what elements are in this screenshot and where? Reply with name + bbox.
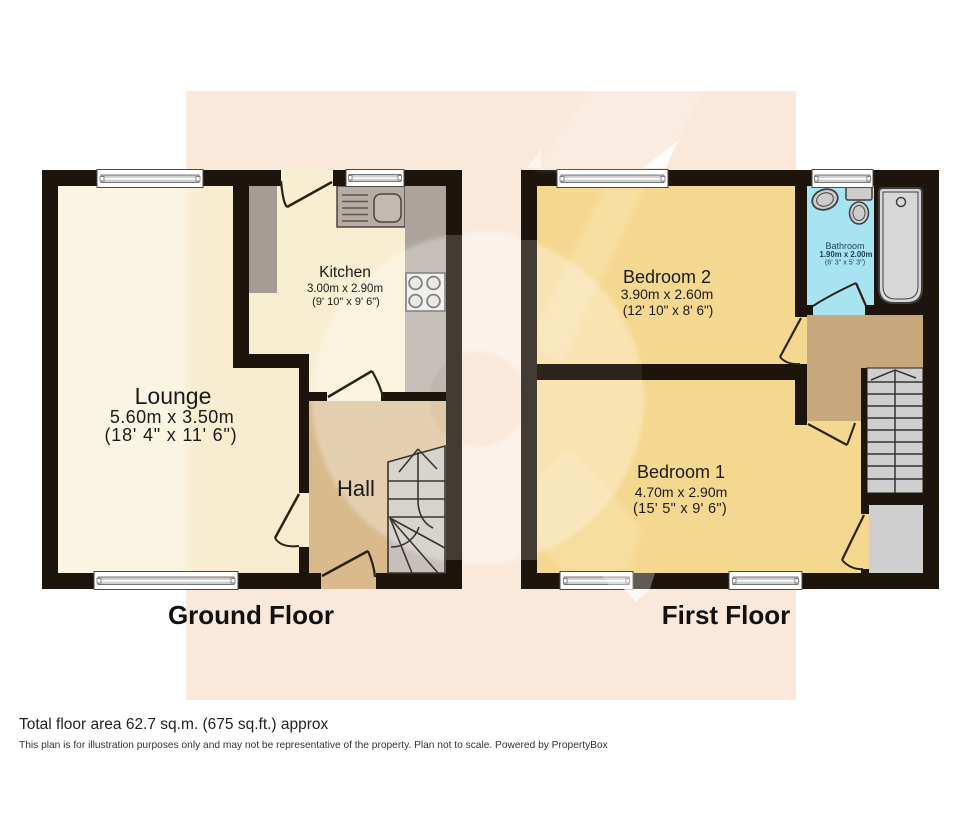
svg-text:(12' 10" x 8' 6"): (12' 10" x 8' 6"): [623, 303, 714, 318]
svg-text:5.60m x 3.50m: 5.60m x 3.50m: [110, 407, 234, 427]
svg-text:Kitchen: Kitchen: [319, 264, 371, 281]
svg-text:Total floor area 62.7 sq.m. (6: Total floor area 62.7 sq.m. (675 sq.ft.)…: [19, 716, 329, 733]
svg-text:Hall: Hall: [337, 476, 375, 501]
svg-text:(15' 5" x 9' 6"): (15' 5" x 9' 6"): [633, 501, 727, 517]
svg-text:3.90m x 2.60m: 3.90m x 2.60m: [621, 286, 714, 302]
svg-text:4.70m x 2.90m: 4.70m x 2.90m: [635, 484, 728, 500]
svg-text:Ground Floor: Ground Floor: [168, 600, 334, 630]
svg-text:Lounge: Lounge: [135, 383, 212, 409]
svg-text:(6' 3" x 5' 3"): (6' 3" x 5' 3"): [825, 258, 865, 267]
svg-text:3.00m x 2.90m: 3.00m x 2.90m: [307, 283, 383, 295]
svg-text:(9' 10" x 9' 6"): (9' 10" x 9' 6"): [312, 296, 380, 308]
svg-text:This plan is for illustration: This plan is for illustration purposes o…: [19, 740, 608, 751]
svg-text:(18' 4" x 11' 6"): (18' 4" x 11' 6"): [105, 425, 238, 445]
svg-text:First Floor: First Floor: [662, 600, 791, 630]
svg-text:Bedroom 2: Bedroom 2: [623, 267, 711, 287]
svg-text:Bedroom 1: Bedroom 1: [637, 462, 725, 482]
